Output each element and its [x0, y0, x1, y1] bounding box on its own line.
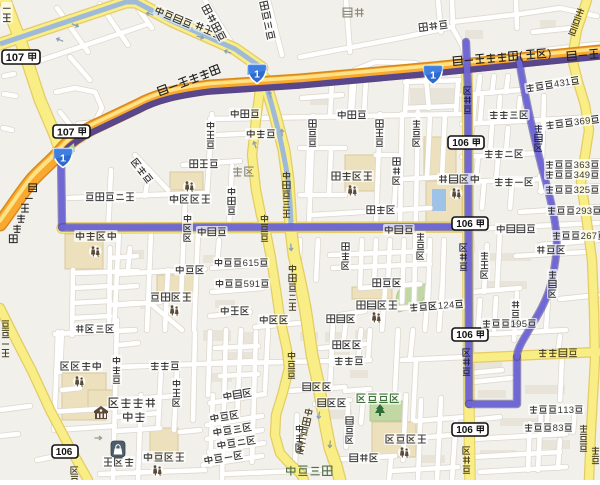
svg-text:107: 107 [57, 126, 75, 138]
svg-text:1: 1 [430, 70, 436, 81]
svg-text:4: 4 [449, 300, 455, 311]
svg-text:1: 1 [563, 405, 568, 416]
svg-text:3: 3 [574, 170, 579, 181]
svg-text:1: 1 [248, 258, 253, 269]
svg-text:1: 1 [255, 279, 260, 290]
svg-text:6: 6 [586, 231, 591, 242]
svg-text:1: 1 [558, 405, 563, 416]
svg-text:3: 3 [587, 206, 592, 217]
svg-text:9: 9 [516, 319, 521, 330]
svg-text:106: 106 [56, 447, 73, 458]
svg-text:106: 106 [456, 219, 473, 230]
svg-text:5: 5 [585, 185, 590, 196]
svg-text:106: 106 [452, 138, 469, 149]
svg-text:2: 2 [579, 185, 584, 196]
svg-text:5: 5 [254, 258, 259, 269]
svg-text:2: 2 [581, 231, 586, 242]
svg-text:1: 1 [511, 319, 516, 330]
svg-text:7: 7 [592, 231, 597, 242]
svg-text:3: 3 [574, 185, 579, 196]
svg-text:1: 1 [60, 153, 66, 164]
svg-text:6: 6 [243, 258, 248, 269]
svg-text:4: 4 [579, 170, 584, 181]
svg-text:9: 9 [249, 279, 254, 290]
svg-text:5: 5 [522, 319, 527, 330]
svg-text:8: 8 [553, 423, 558, 434]
svg-text:3: 3 [558, 423, 563, 434]
svg-text:107: 107 [6, 52, 24, 64]
svg-text:3: 3 [569, 405, 574, 416]
svg-text:106: 106 [456, 425, 473, 436]
svg-text:9: 9 [581, 206, 586, 217]
svg-text:106: 106 [456, 330, 473, 341]
svg-text:1: 1 [254, 69, 260, 80]
svg-text:2: 2 [576, 206, 581, 217]
svg-text:9: 9 [585, 170, 590, 181]
svg-text:5: 5 [244, 279, 249, 290]
